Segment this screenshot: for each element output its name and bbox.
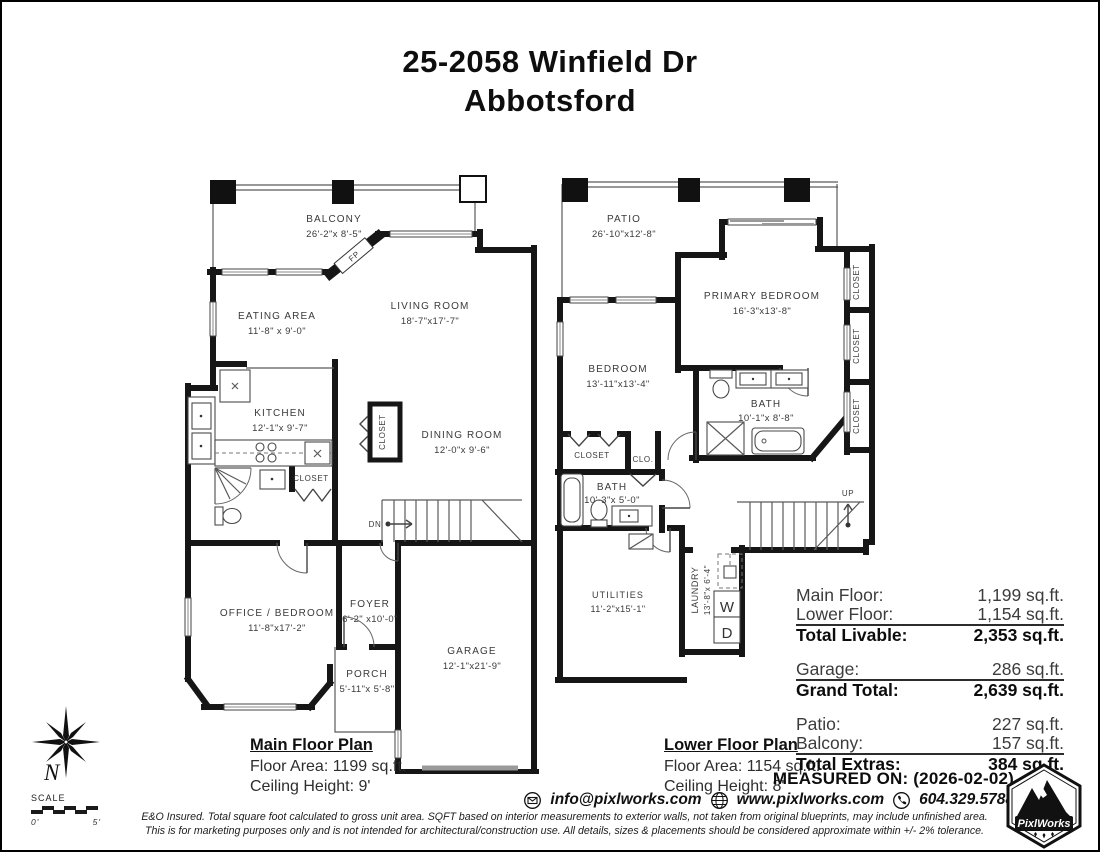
contact-email[interactable]: info@pixlworks.com bbox=[550, 791, 701, 809]
contact-website[interactable]: www.pixlworks.com bbox=[737, 791, 885, 809]
summary-label: Garage: bbox=[796, 660, 859, 679]
clo-label: CLO. bbox=[632, 455, 653, 464]
room-label-kitchen: KITCHEN bbox=[254, 408, 306, 419]
summary-row: Patio: 227 sq.ft. bbox=[796, 715, 1064, 734]
room-dims-bath-lower: 10'-3"x 5'-0" bbox=[584, 495, 640, 506]
room-label-living-room: LIVING ROOM bbox=[391, 301, 470, 312]
phone-icon bbox=[893, 792, 910, 809]
floorplan-page: 25-2058 Winfield Dr Abbotsford bbox=[0, 0, 1100, 852]
page-title: 25-2058 Winfield Dr Abbotsford bbox=[2, 42, 1098, 120]
main-floor-plan: FP DN bbox=[182, 174, 547, 774]
summary-group-livable: Main Floor: 1,199 sq.ft. Lower Floor: 1,… bbox=[796, 586, 1064, 645]
disclaimer: E&O Insured. Total square foot calculate… bbox=[97, 811, 1032, 838]
summary-label: Main Floor: bbox=[796, 586, 884, 605]
room-dims-bath-upper: 10'-1"x 8'-8" bbox=[738, 413, 794, 424]
summary-value: 1,199 sq.ft. bbox=[977, 586, 1064, 605]
summary-row: Garage: 286 sq.ft. bbox=[796, 660, 1064, 679]
city-line: Abbotsford bbox=[2, 81, 1098, 120]
stairs-up-label: UP bbox=[842, 489, 854, 498]
compass-rose bbox=[28, 702, 104, 782]
room-label-bath-lower: BATH bbox=[597, 482, 627, 493]
compass-north-label: N bbox=[44, 760, 59, 786]
scale-end: 5' bbox=[93, 817, 101, 827]
room-label-primary-bedroom: PRIMARY BEDROOM bbox=[704, 291, 820, 302]
logo-text: PixlWorks bbox=[1018, 818, 1071, 830]
contact-row: info@pixlworks.com www.pixlworks.com 604… bbox=[562, 791, 1014, 809]
globe-icon bbox=[711, 792, 728, 809]
disclaimer-line1: E&O Insured. Total square foot calculate… bbox=[97, 811, 1032, 825]
summary-row: Lower Floor: 1,154 sq.ft. bbox=[796, 605, 1064, 624]
fireplace: FP bbox=[334, 238, 373, 274]
closet2-label: CLOSET bbox=[852, 328, 861, 364]
summary-value: 286 sq.ft. bbox=[992, 660, 1064, 679]
room-label-bedroom: BEDROOM bbox=[588, 364, 647, 375]
room-label-bath-upper: BATH bbox=[751, 399, 781, 410]
summary-label: Balcony: bbox=[796, 734, 863, 753]
summary-value: 1,154 sq.ft. bbox=[977, 605, 1064, 624]
area-summary-table: Main Floor: 1,199 sq.ft. Lower Floor: 1,… bbox=[796, 586, 1064, 789]
summary-row: Main Floor: 1,199 sq.ft. bbox=[796, 586, 1064, 605]
room-dims-dining-room: 12'-0"x 9'-6" bbox=[434, 445, 490, 456]
room-label-dining-room: DINING ROOM bbox=[422, 430, 503, 441]
disclaimer-line2: This is for marketing purposes only and … bbox=[97, 825, 1032, 839]
room-dims-utilities: 11'-2"x15'-1" bbox=[591, 604, 646, 614]
closet-dining-label: CLOSET bbox=[378, 414, 387, 450]
room-dims-laundry: 13'-8"x 6'-4" bbox=[703, 565, 712, 615]
summary-label: Grand Total: bbox=[796, 681, 899, 700]
scale-segments bbox=[31, 805, 95, 815]
summary-label: Lower Floor: bbox=[796, 605, 893, 624]
closet3-label: CLOSET bbox=[852, 398, 861, 434]
address-line: 25-2058 Winfield Dr bbox=[2, 42, 1098, 81]
closet1-label: CLOSET bbox=[852, 264, 861, 300]
summary-value: 2,639 sq.ft. bbox=[974, 681, 1064, 700]
dryer-label: D bbox=[722, 625, 733, 642]
closet-h-label: CLOSET bbox=[574, 451, 610, 460]
summary-total-row: Grand Total: 2,639 sq.ft. bbox=[796, 679, 1064, 700]
summary-value: 2,353 sq.ft. bbox=[974, 626, 1064, 645]
bathroom-fixtures bbox=[215, 468, 285, 525]
room-dims-living-room: 18'-7"x17'-7" bbox=[401, 316, 459, 327]
stairs-dn-label: DN bbox=[369, 520, 382, 529]
stairs-up: UP bbox=[737, 489, 864, 550]
scale-start: 0' bbox=[31, 817, 39, 827]
room-dims-garage: 12'-1"x21'-9" bbox=[443, 661, 501, 672]
pixlworks-logo: PixlWorks bbox=[1002, 762, 1086, 850]
room-label-office-bedroom: OFFICE / BEDROOM bbox=[220, 608, 334, 619]
room-dims-primary-bedroom: 16'-3"x13'-8" bbox=[733, 306, 791, 317]
room-dims-office-bedroom: 11'-8"x17'-2" bbox=[248, 623, 306, 634]
room-dims-porch: 5'-11"x 5'-8" bbox=[339, 684, 394, 695]
room-label-eating-area: EATING AREA bbox=[238, 311, 316, 322]
summary-value: 227 sq.ft. bbox=[992, 715, 1064, 734]
summary-row: Balcony: 157 sq.ft. bbox=[796, 734, 1064, 753]
main-floor-caption: Main Floor Plan Floor Area: 1199 sq.ft. … bbox=[250, 735, 406, 797]
washer-label: W bbox=[720, 599, 735, 616]
measured-on: MEASURED ON: (2026-02-02) bbox=[702, 769, 1014, 789]
room-label-foyer: FOYER bbox=[350, 599, 390, 610]
room-label-garage: GARAGE bbox=[447, 646, 496, 657]
room-dims-eating-area: 11'-8" x 9'-0" bbox=[248, 326, 306, 337]
summary-label: Patio: bbox=[796, 715, 841, 734]
main-floor-caption-title: Main Floor Plan bbox=[250, 735, 406, 755]
main-floor-ceiling: Ceiling Height: 9' bbox=[250, 777, 406, 797]
envelope-icon bbox=[524, 792, 541, 809]
contact-phone[interactable]: 604.329.5788 bbox=[919, 791, 1014, 809]
room-dims-balcony: 26'-2"x 8'-5" bbox=[306, 229, 362, 240]
room-label-utilities: UTILITIES bbox=[592, 590, 644, 600]
room-dims-patio: 26'-10"x12'-8" bbox=[592, 229, 656, 240]
summary-total-row: Total Livable: 2,353 sq.ft. bbox=[796, 624, 1064, 645]
main-floor-area: Floor Area: 1199 sq.ft. bbox=[250, 757, 406, 777]
room-dims-foyer: 6'-2" x10'-0" bbox=[342, 614, 398, 625]
room-label-patio: PATIO bbox=[607, 214, 641, 225]
room-label-laundry: LAUNDRY bbox=[690, 566, 700, 613]
stairs-down: DN bbox=[369, 500, 522, 542]
closet-bath-label: CLOSET bbox=[293, 474, 329, 483]
summary-label: Total Livable: bbox=[796, 626, 908, 645]
room-dims-bedroom: 13'-11"x13'-4" bbox=[586, 379, 649, 390]
windows bbox=[557, 219, 850, 432]
room-label-porch: PORCH bbox=[346, 669, 388, 680]
summary-group-grand: Garage: 286 sq.ft. Grand Total: 2,639 sq… bbox=[796, 660, 1064, 700]
room-label-balcony: BALCONY bbox=[306, 214, 362, 225]
room-dims-kitchen: 12'-1"x 9'-7" bbox=[252, 423, 308, 434]
summary-value: 157 sq.ft. bbox=[992, 734, 1064, 753]
scale-bar: SCALE 0' 5' bbox=[31, 793, 101, 827]
scale-label: SCALE bbox=[31, 793, 101, 803]
